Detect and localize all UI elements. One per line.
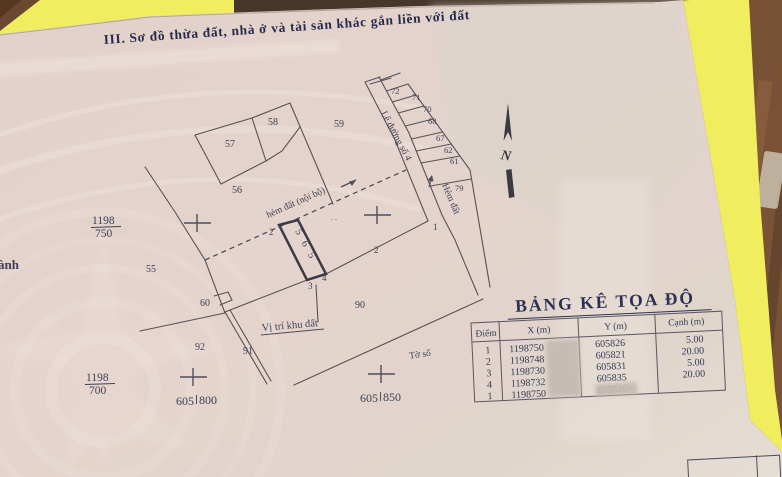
svg-text:605: 605	[360, 391, 378, 405]
svg-text:605835: 605835	[597, 372, 627, 384]
svg-text:3: 3	[486, 368, 492, 379]
svg-text:1: 1	[433, 222, 438, 232]
svg-text:4: 4	[322, 273, 327, 283]
svg-text:1198: 1198	[92, 215, 115, 227]
svg-text:1198750: 1198750	[511, 389, 546, 402]
svg-text:90: 90	[355, 300, 365, 311]
svg-text:Điểm: Điểm	[475, 328, 497, 340]
svg-text:2: 2	[269, 227, 274, 237]
svg-text:61: 61	[450, 156, 459, 166]
svg-text:1198: 1198	[86, 372, 109, 384]
svg-text:Y (m): Y (m)	[604, 321, 627, 333]
svg-text:1198732: 1198732	[511, 377, 546, 390]
svg-text:750: 750	[95, 228, 113, 240]
svg-text:71: 71	[412, 92, 421, 102]
svg-text:70: 70	[423, 104, 432, 114]
svg-text:91: 91	[243, 346, 253, 357]
svg-text:5.00: 5.00	[687, 357, 705, 369]
svg-text:20.00: 20.00	[681, 346, 704, 358]
svg-text:605821: 605821	[595, 349, 625, 361]
svg-text:67: 67	[436, 133, 445, 143]
svg-text:59: 59	[334, 119, 344, 130]
svg-text:605: 605	[176, 394, 194, 408]
svg-text:X (m): X (m)	[527, 324, 550, 336]
svg-text:. .: . .	[331, 213, 337, 222]
svg-text:2: 2	[374, 245, 379, 255]
svg-text:68: 68	[428, 116, 437, 126]
svg-text:1198748: 1198748	[510, 354, 545, 367]
svg-text:1198730: 1198730	[510, 366, 545, 379]
svg-text:1198750: 1198750	[509, 343, 544, 356]
svg-text:850: 850	[383, 390, 401, 404]
svg-text:1: 1	[485, 345, 491, 356]
svg-text:4: 4	[487, 380, 493, 391]
svg-text:79: 79	[455, 183, 464, 193]
svg-text:1: 1	[487, 391, 493, 402]
svg-text:ành: ành	[0, 257, 20, 272]
svg-text:62: 62	[444, 145, 453, 155]
svg-text:55: 55	[146, 264, 156, 275]
svg-text:5.00: 5.00	[686, 334, 704, 346]
svg-text:60: 60	[200, 298, 210, 309]
svg-text:605831: 605831	[596, 361, 626, 373]
svg-text:3: 3	[308, 281, 313, 291]
svg-text:57: 57	[225, 139, 235, 150]
svg-text:72: 72	[391, 86, 400, 96]
svg-text:800: 800	[199, 393, 217, 407]
svg-text:700: 700	[89, 385, 107, 397]
svg-text:2: 2	[486, 357, 492, 368]
svg-text:605826: 605826	[595, 338, 625, 350]
svg-text:92: 92	[195, 342, 205, 353]
svg-text:58: 58	[268, 117, 278, 128]
svg-text:20.00: 20.00	[682, 369, 705, 381]
svg-text:Cạnh (m): Cạnh (m)	[668, 316, 705, 329]
svg-text:56: 56	[232, 185, 242, 196]
